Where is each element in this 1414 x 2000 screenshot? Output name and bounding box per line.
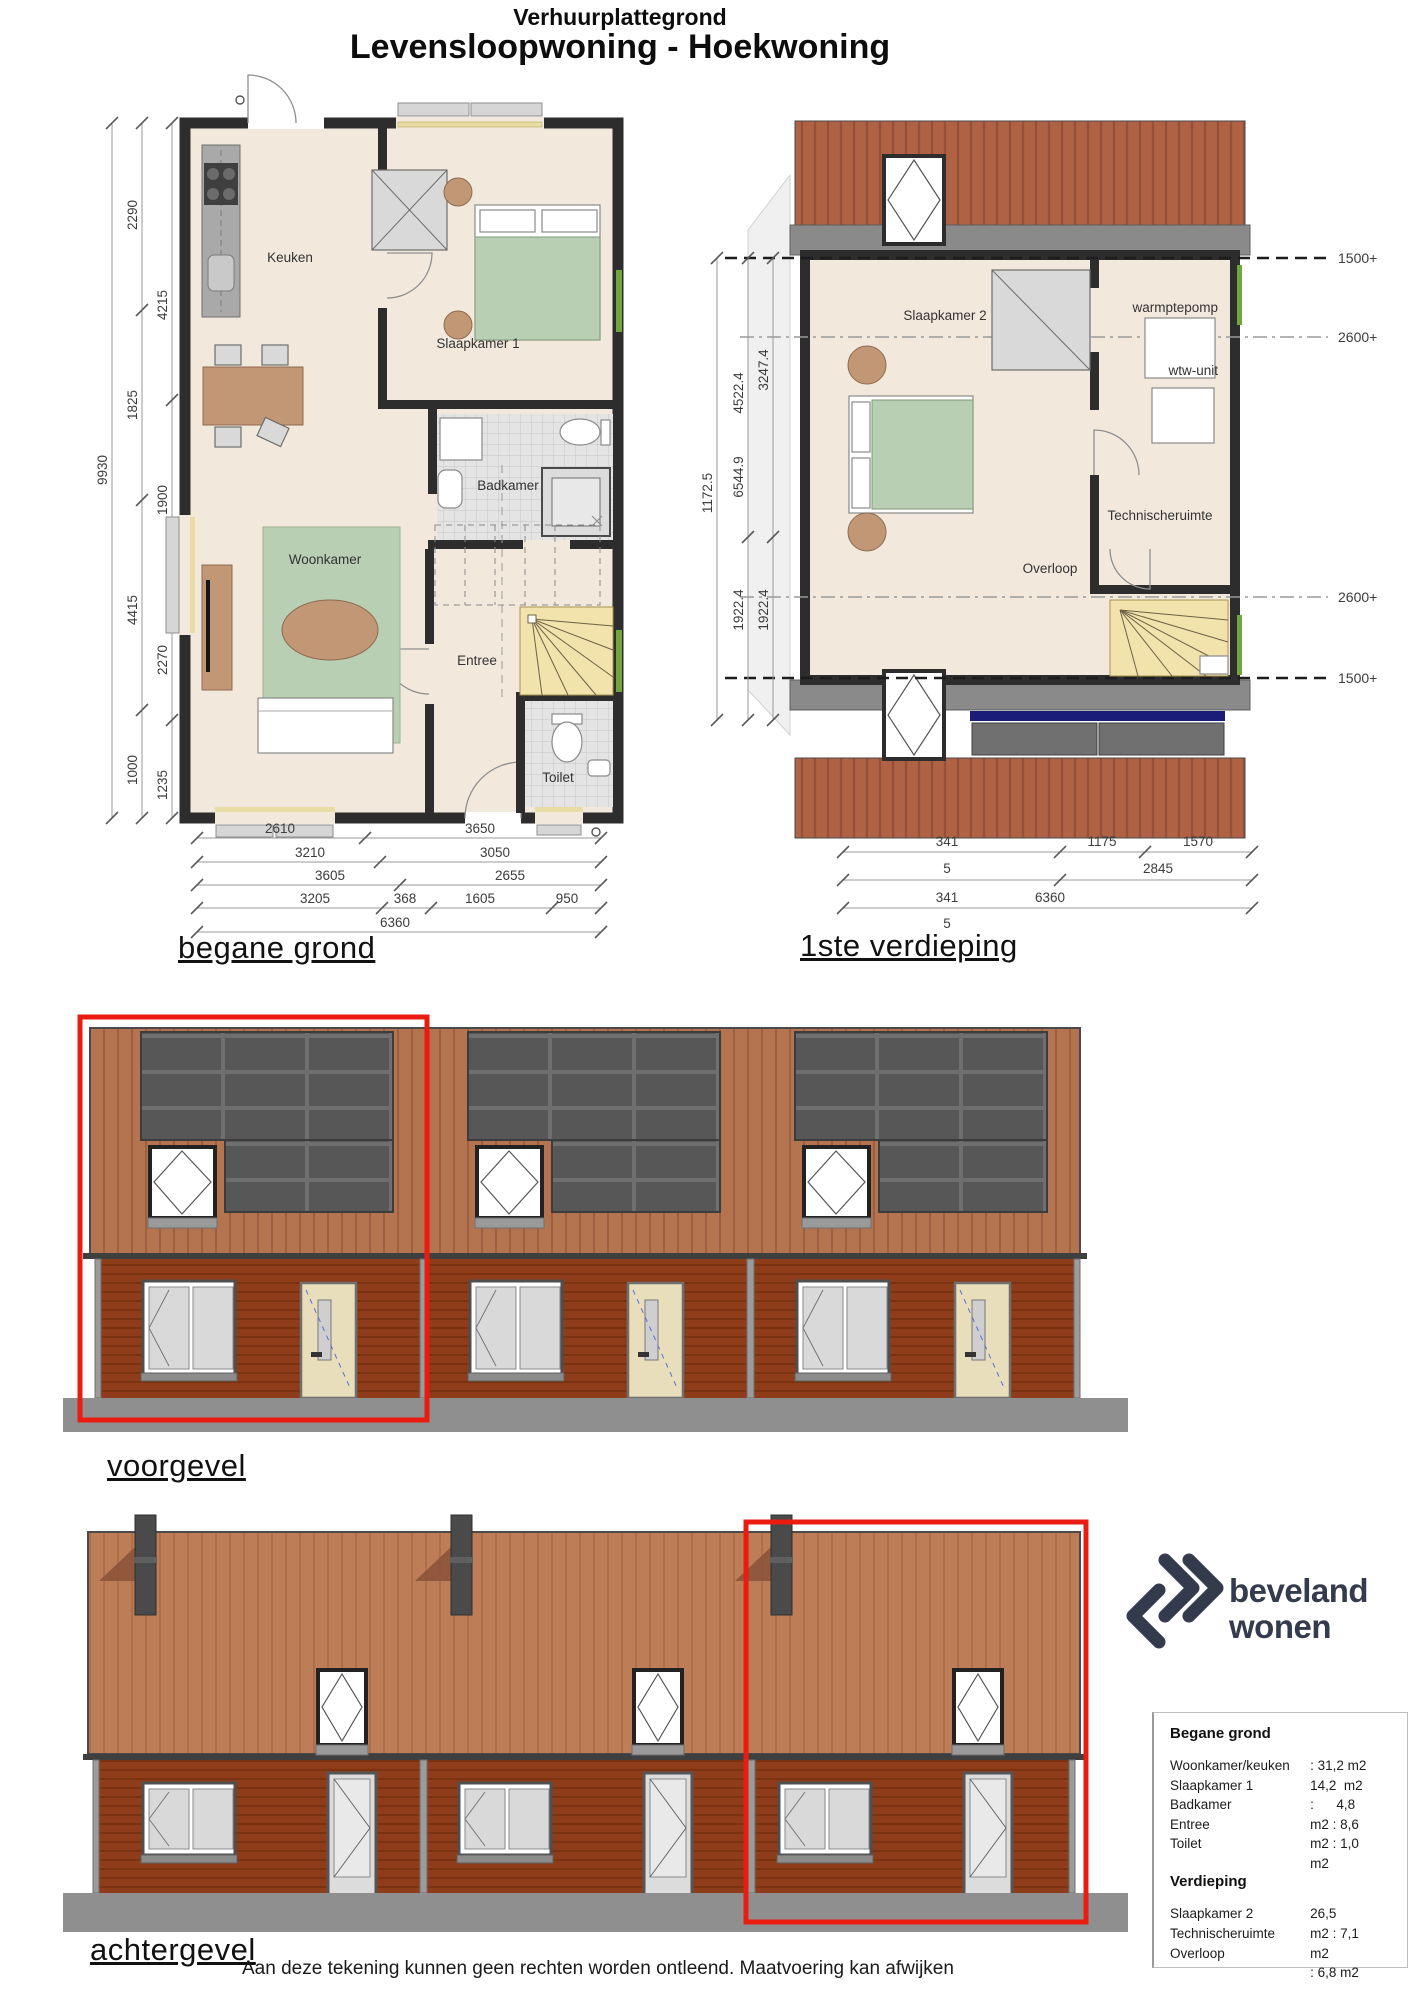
dim-left: 6544.9 [731,456,746,497]
dim-left: 1825 [125,390,140,420]
area-label: Overloop [1170,1944,1310,1964]
area-value: : 31,2 m2 [1310,1756,1395,1776]
area-value: m2 [1310,1944,1395,1964]
first-floor-bottom-dimensions: 341 1175 1570 5 2845 341 6360 5 [837,834,1258,931]
dim-bottom: 3650 [465,821,495,836]
first-floor-plan: 1500+ 2600+ 2600+ 1500+ 1172.5 4522.4 65… [640,80,1414,960]
ground-floor-left-dimensions: 9930 2290 1825 4415 1000 4215 1900 2270 … [95,117,178,824]
dim-bottom: 341 [936,890,959,905]
sheet-title: Levensloopwoning - Hoekwoning [0,28,1240,67]
dim-bottom: 2655 [495,868,525,883]
height-label: 2600+ [1338,589,1377,605]
bathroom-fixtures: Badkamer [437,414,613,540]
dim-left: 1922.4 [731,589,746,631]
area-table-ground-rows: Woonkamer/keuken Slaapkamer 1 Badkamer E… [1170,1756,1395,1873]
dim-left: 2290 [125,200,140,230]
first-floor-label: 1ste verdieping [800,928,1018,964]
ground-floor-plan: 9930 2290 1825 4415 1000 4215 1900 2270 … [80,70,640,950]
dim-bottom: 2610 [265,821,295,836]
area-label: Entree [1170,1815,1310,1835]
room-label-wtw-unit: wtw-unit [1167,363,1218,378]
room-label-entree: Entree [457,653,497,668]
room-label-keuken: Keuken [267,250,313,265]
dim-left: 3247.4 [756,349,771,391]
area-label: Woonkamer/keuken [1170,1756,1310,1776]
dim-left: 4415 [125,595,140,625]
dim-left: 4215 [155,290,170,320]
rear-elevation [55,1505,1135,1980]
ground-strip [63,1398,1128,1432]
beveland-wonen-logo-mark [1133,1560,1217,1642]
area-value: : 4,8 [1310,1795,1395,1815]
area-label: Technischeruimte [1170,1924,1310,1944]
area-label: Slaapkamer 2 [1170,1904,1310,1924]
beveland-wonen-logo: beveland wonen [1125,1550,1410,1660]
front-elevation-drawing [63,1017,1128,1432]
dim-left: 2270 [155,645,170,675]
ground-floor-bottom-dimensions: 2610 3650 3210 3050 3605 2655 3205 368 1… [191,821,607,938]
dim-bottom: 3050 [480,845,510,860]
height-label: 2600+ [1338,329,1377,345]
rear-elevation-drawing [63,1515,1128,1932]
dim-bottom: 6360 [1035,890,1065,905]
area-table-ground-title: Begane grond [1170,1725,1395,1742]
dim-bottom: 3205 [300,891,330,906]
area-value: 14,2 m2 [1310,1776,1395,1796]
rear-elevation-label: achtergevel [90,1932,256,1968]
dim-bottom: 6360 [380,915,410,930]
area-value: : 6,8 m2 [1310,1963,1395,1983]
dim-left: 1900 [155,485,170,515]
dim-left: 1172.5 [700,473,715,513]
area-table: Begane grond Woonkamer/keuken Slaapkamer… [1152,1712,1408,1968]
area-value: m2 [1310,1854,1395,1874]
height-label: 1500+ [1338,670,1377,686]
room-label-technischeruimte: Technischeruimte [1107,508,1212,523]
front-elevation-label: voorgevel [107,1448,246,1484]
room-label-woonkamer: Woonkamer [289,552,362,567]
area-value: 26,5 [1310,1904,1395,1924]
disclaimer-text: Aan deze tekening kunnen geen rechten wo… [242,1958,954,1980]
front-elevation [55,1000,1135,1500]
ground-strip [63,1893,1128,1932]
dim-total-height: 9930 [95,455,110,485]
area-label: Toilet [1170,1834,1310,1854]
dim-left: 1000 [125,755,140,785]
area-table-floor-rows: Slaapkamer 2 Technischeruimte Overloop 2… [1170,1904,1395,1982]
height-label: 1500+ [1338,250,1377,266]
area-label: Slaapkamer 1 [1170,1776,1310,1796]
room-label-warmtepomp: warmptepomp [1131,300,1218,315]
logo-text-line1: beveland [1229,1572,1368,1609]
dim-bottom: 1570 [1183,834,1213,849]
area-table-floor-title: Verdieping [1170,1873,1395,1890]
dim-bottom: 5 [943,861,951,876]
dim-bottom: 2845 [1143,861,1173,876]
dim-left: 1922.4 [756,589,771,631]
area-value: m2 : 8,6 [1310,1815,1395,1835]
room-label-slaapkamer1: Slaapkamer 1 [436,336,519,351]
area-value: m2 : 7,1 [1310,1924,1395,1944]
area-value: m2 : 1,0 [1310,1834,1395,1854]
room-label-slaapkamer2: Slaapkamer 2 [903,308,986,323]
room-label-toilet: Toilet [542,770,574,785]
sheet-subtitle: Verhuurplattegrond [0,4,1240,31]
dim-bottom: 3210 [295,845,325,860]
dim-bottom: 368 [394,891,417,906]
room-label-badkamer: Badkamer [477,478,539,493]
drawing-sheet: Verhuurplattegrond Levensloopwoning - Ho… [0,0,1414,2000]
dim-left: 4522.4 [731,372,746,414]
dim-bottom: 1605 [465,891,495,906]
dim-bottom: 3605 [315,868,345,883]
dim-bottom: 341 [936,834,959,849]
ground-floor-label: begane grond [178,930,375,966]
dim-left: 1235 [155,770,170,800]
dim-bottom: 950 [556,891,579,906]
logo-text-line2: wonen [1228,1608,1331,1645]
room-label-overloop: Overloop [1023,561,1078,576]
dim-bottom: 1175 [1087,834,1116,849]
area-label: Badkamer [1170,1795,1310,1815]
